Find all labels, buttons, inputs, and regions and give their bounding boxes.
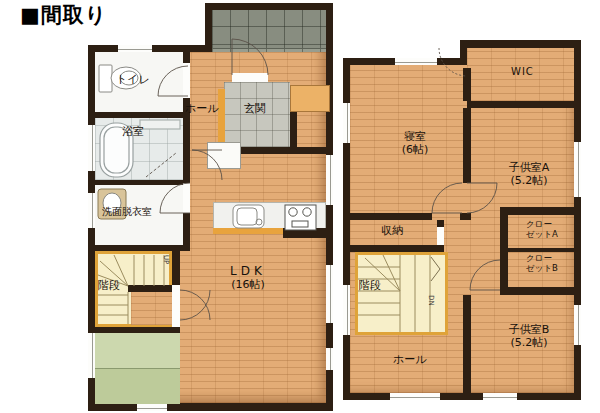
- wall-segment: [290, 112, 297, 147]
- wall-segment: [172, 251, 180, 285]
- label-kids-b-name: 子供室B: [495, 323, 563, 336]
- label-closet-b-line1: クロー: [526, 253, 558, 263]
- door-gap: [172, 285, 180, 327]
- label-wic: WIC: [511, 66, 534, 78]
- wall-segment: [343, 393, 581, 400]
- label-bedroom: 寝室 (6帖): [385, 130, 445, 156]
- label-bath: 浴室: [122, 125, 144, 138]
- window: [326, 265, 333, 323]
- label-hall-f2: ホール: [393, 353, 427, 366]
- floor2-plan: WIC 寝室 (6帖) 子供室A (5.2帖) 収納 クロー ゼットA クロー …: [343, 37, 581, 400]
- wall-segment: [508, 248, 581, 252]
- label-ldk: LDK (16帖): [216, 264, 280, 292]
- wall-segment: [183, 213, 190, 251]
- window: [343, 285, 350, 335]
- porch-step: [212, 10, 326, 49]
- wall-segment: [500, 287, 581, 295]
- wall-segment: [460, 40, 581, 48]
- label-ldk-size: (16帖): [216, 278, 280, 291]
- label-kids-a-name: 子供室A: [495, 161, 563, 174]
- door-gap: [183, 183, 190, 213]
- window: [88, 333, 95, 378]
- label-stairs-f2: 階段: [359, 279, 381, 292]
- wall-segment: [350, 245, 444, 252]
- kitchen-counter: [213, 202, 326, 230]
- label-toilet: トイレ: [116, 73, 150, 86]
- window: [390, 393, 440, 400]
- window: [326, 155, 333, 205]
- window: [343, 103, 350, 143]
- kitchen-base-strip: [213, 228, 283, 234]
- room-stairs-f2: [355, 252, 448, 335]
- label-stairs-f1: 階段: [98, 279, 120, 292]
- window: [137, 404, 167, 411]
- label-closet-b: クロー ゼットB: [526, 253, 558, 273]
- wall-segment: [500, 207, 581, 215]
- wall-segment: [467, 101, 581, 108]
- wall-segment: [463, 68, 471, 101]
- label-closet-a-line2: ゼットA: [526, 229, 558, 239]
- label-kids-b-size: (5.2帖): [495, 336, 563, 349]
- label-storage: 収納: [381, 224, 403, 237]
- door-gap: [183, 63, 190, 98]
- tatami-mat-lower: [95, 368, 180, 404]
- shoe-cabinet: [290, 85, 330, 112]
- understairs-floor: [131, 292, 172, 325]
- label-entrance: 玄関: [244, 102, 266, 115]
- window: [326, 348, 333, 370]
- label-bedroom-size: (6帖): [385, 143, 445, 156]
- window: [395, 58, 437, 65]
- entrance-step-strip: [218, 89, 225, 147]
- label-kids-b: 子供室B (5.2帖): [495, 323, 563, 349]
- label-closet-b-line2: ゼットB: [526, 263, 558, 273]
- wall-segment: [283, 228, 326, 238]
- wall-segment: [463, 295, 471, 393]
- label-up: UP: [162, 255, 170, 264]
- floor1-plan: トイレ 浴室 洗面脱衣室 ホール 玄関 階段 UP LDK (16帖): [88, 3, 333, 411]
- door-gap: [437, 227, 444, 245]
- window: [483, 393, 517, 400]
- window: [88, 193, 95, 228]
- entrance-door-gap: [232, 73, 268, 82]
- wall-segment: [463, 108, 471, 183]
- label-kids-a-size: (5.2帖): [495, 174, 563, 187]
- refrigerator: [207, 142, 241, 169]
- label-closet-a-line1: クロー: [526, 219, 558, 229]
- window: [88, 125, 95, 171]
- wall-stairs-landing: [128, 285, 172, 292]
- label-kids-a: 子供室A (5.2帖): [495, 161, 563, 187]
- label-closet-a: クロー ゼットA: [526, 219, 558, 239]
- window: [118, 45, 152, 52]
- label-hall-f1: ホール: [185, 102, 219, 115]
- window: [574, 305, 581, 345]
- window: [574, 142, 581, 197]
- wall-segment: [460, 213, 471, 220]
- wall-segment: [183, 52, 190, 63]
- wall-segment: [500, 215, 508, 295]
- wall-segment: [350, 213, 432, 220]
- floor-plan-page: ■間取り: [0, 0, 600, 413]
- label-washroom: 洗面脱衣室: [102, 206, 152, 218]
- label-bedroom-name: 寝室: [385, 130, 445, 143]
- label-ldk-name: LDK: [216, 264, 280, 278]
- label-dn: DN: [427, 295, 435, 306]
